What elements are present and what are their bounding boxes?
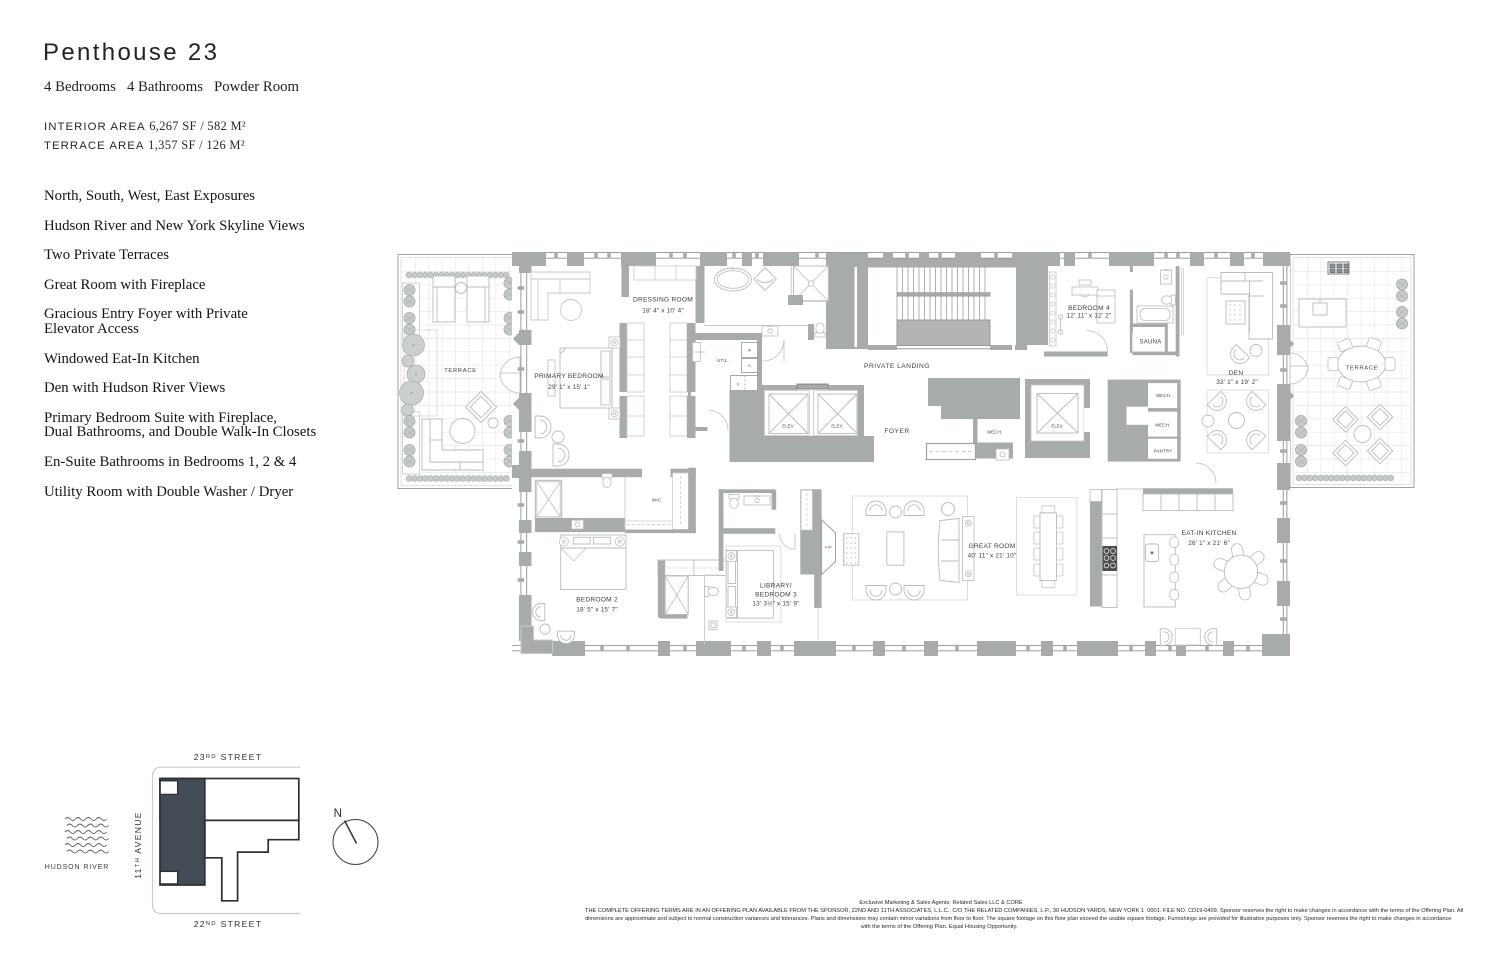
svg-text:ELEV.: ELEV. [831,424,843,429]
svg-text:MECH.: MECH. [1156,393,1171,398]
svg-text:PRIVATE LANDING: PRIVATE LANDING [864,363,930,370]
svg-text:BEDROOM 4: BEDROOM 4 [1068,305,1110,312]
svg-text:HUDSON RIVER: HUDSON RIVER [45,864,109,871]
svg-text:29' 1" x 15' 1": 29' 1" x 15' 1" [548,384,590,391]
svg-text:23RD STREET: 23RD STREET [194,752,263,762]
svg-text:26' 1" x 21' 6": 26' 1" x 21' 6" [1188,540,1230,547]
svg-text:FOYER: FOYER [884,428,909,435]
svg-text:D: D [748,364,751,368]
svg-text:18' 4" x 10' 4": 18' 4" x 10' 4" [642,308,684,315]
svg-text:ELEV.: ELEV. [782,424,794,429]
svg-text:EAT-IN KITCHEN: EAT-IN KITCHEN [1181,530,1236,537]
svg-text:DRESSING ROOM: DRESSING ROOM [633,297,693,304]
svg-text:LIBRARY/: LIBRARY/ [760,583,792,590]
svg-text:18' 5" x 15' 7": 18' 5" x 15' 7" [576,607,618,614]
svg-text:TERRACE: TERRACE [444,368,477,374]
svg-text:PRIMARY BEDROOM: PRIMARY BEDROOM [534,373,603,380]
svg-text:SAUNA: SAUNA [1140,340,1162,346]
svg-text:MECH.: MECH. [987,430,1002,435]
svg-text:MECH.: MECH. [1155,423,1170,428]
svg-text:TERRACE: TERRACE [1346,366,1379,372]
svg-text:WIC: WIC [652,498,662,503]
svg-text:DEN: DEN [1229,370,1244,377]
svg-text:BEDROOM 3: BEDROOM 3 [755,592,797,599]
svg-text:ELEV.: ELEV. [1051,424,1063,429]
svg-text:12' 11" x 12' 2": 12' 11" x 12' 2" [1067,313,1112,320]
svg-text:N: N [334,808,343,820]
svg-text:13' 3½" x 15' 9": 13' 3½" x 15' 9" [752,600,799,608]
svg-text:GREAT ROOM: GREAT ROOM [969,543,1016,550]
svg-text:PANTRY: PANTRY [1154,449,1173,454]
svg-text:F/P: F/P [825,545,832,550]
svg-text:UTIL.: UTIL. [717,358,729,363]
svg-text:11TH AVENUE: 11TH AVENUE [133,811,143,879]
svg-text:22ND STREET: 22ND STREET [194,919,263,929]
svg-text:S: S [737,383,739,387]
svg-text:40' 11" x 21' 10": 40' 11" x 21' 10" [968,553,1017,560]
svg-text:33' 1" x 19' 2": 33' 1" x 19' 2" [1216,379,1258,386]
svg-text:BEDROOM 2: BEDROOM 2 [576,597,618,604]
